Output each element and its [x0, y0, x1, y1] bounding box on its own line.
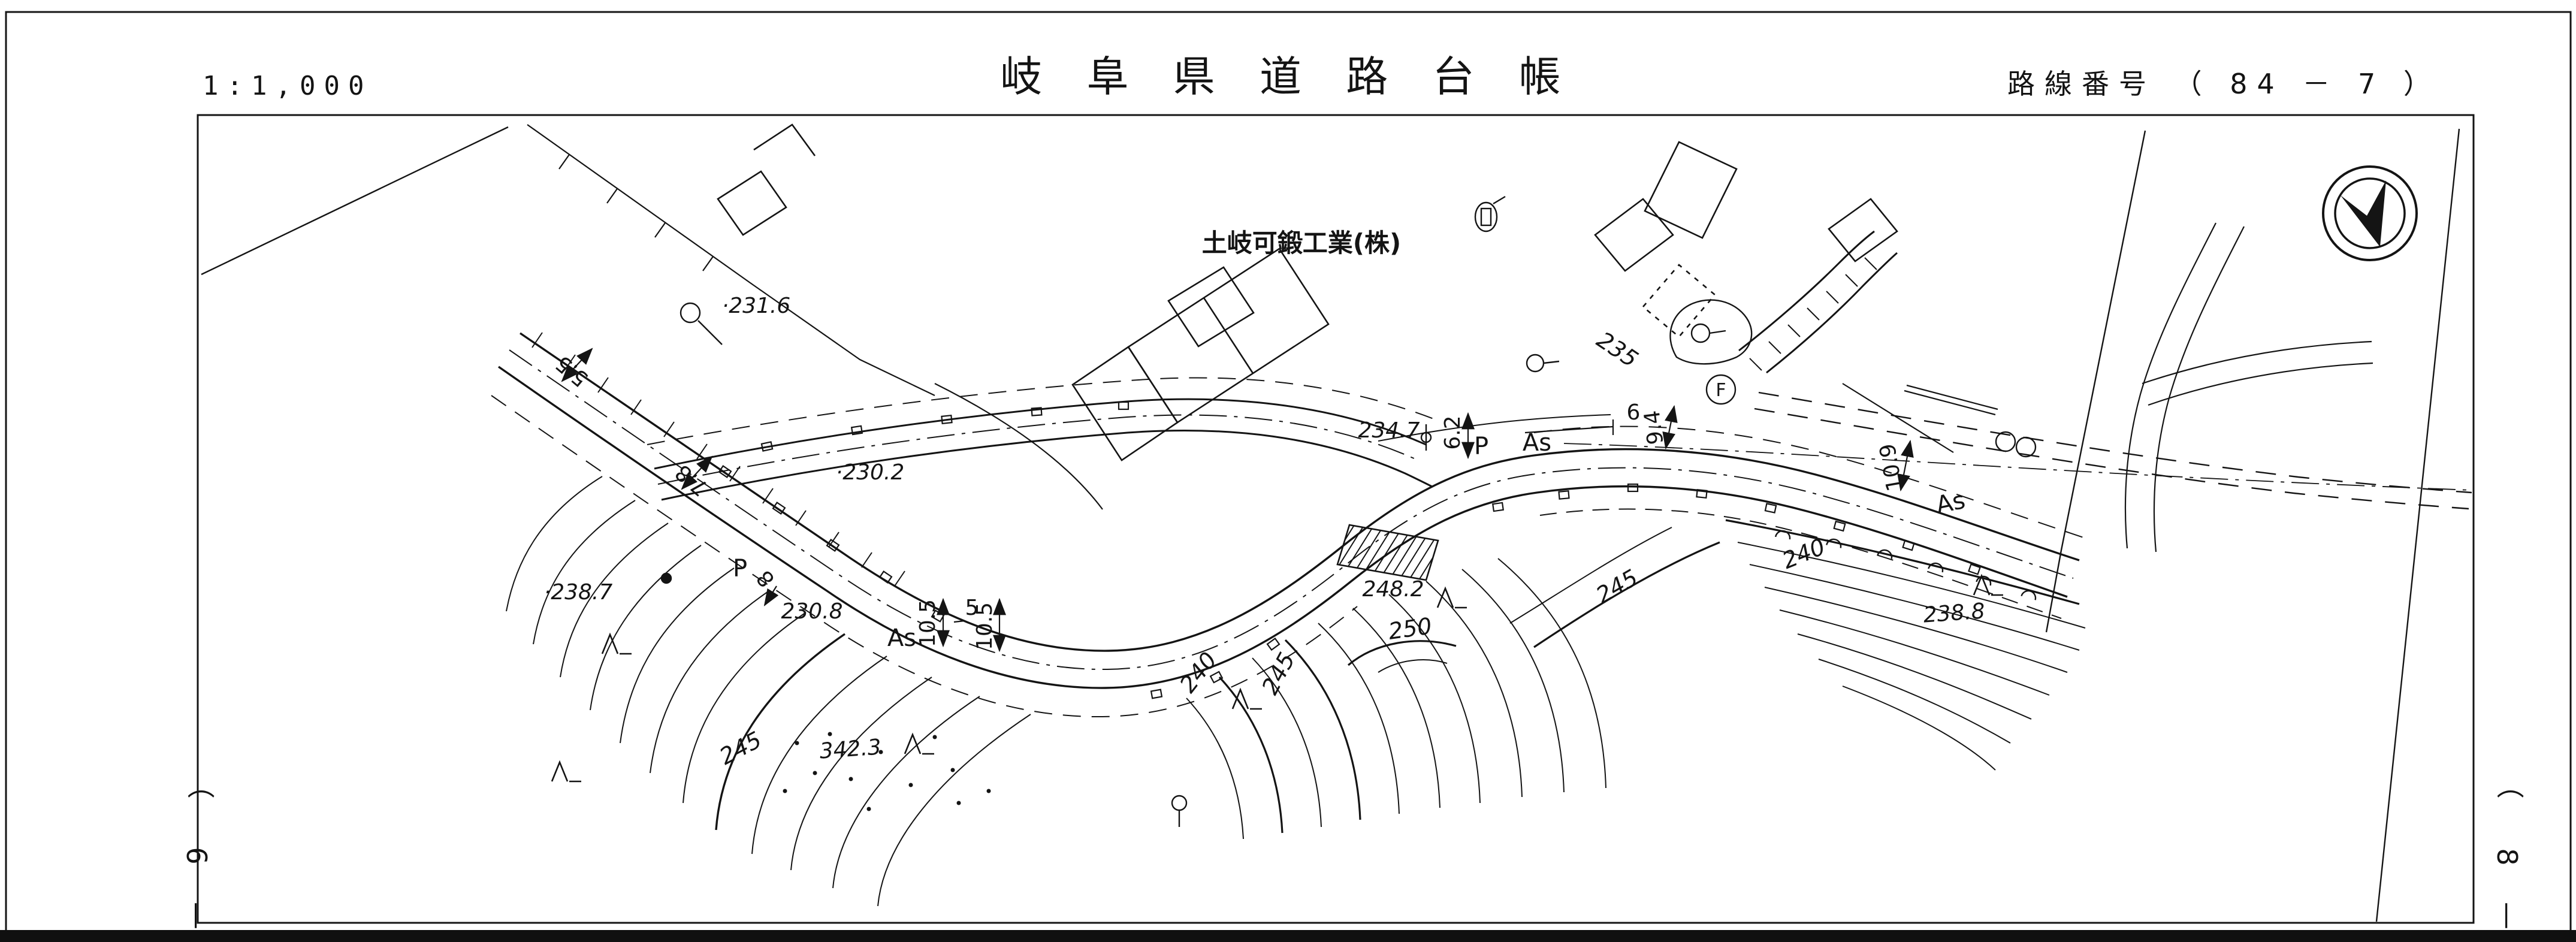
route-number-label: 路線番号 （ 84 － 7 ）: [2007, 68, 2441, 100]
bank-hatch-ticks-ne: [1750, 258, 1877, 370]
circle-tick-icon: [1527, 355, 1559, 372]
main-road-centerline: [509, 350, 2073, 669]
map-symbols: [662, 197, 2036, 827]
map-label-25: 9.4: [1640, 409, 1669, 446]
stream-lines: [2125, 223, 2373, 552]
map-label-17: P: [1474, 433, 1488, 460]
fence-lines-northwest: [527, 125, 1103, 509]
building: [1829, 199, 1897, 261]
page-title: 岐 阜 県 道 路 台 帳: [1000, 52, 1577, 101]
factory-building-annex: [1073, 347, 1177, 460]
map-label-14: 235: [1592, 327, 1643, 373]
building: [718, 171, 786, 235]
filled-point: [662, 573, 671, 583]
right-dash: —: [2492, 902, 2524, 929]
map-label-7: 342.3: [819, 735, 882, 763]
map-label-13: 240: [1778, 533, 1829, 574]
map-label-23: 6.2: [1440, 415, 1465, 449]
map-label-1: ·230.2: [836, 460, 905, 485]
map-label-6: 238.8: [1922, 599, 1986, 627]
building: [1595, 199, 1673, 271]
circle-stem-icon: [1172, 796, 1186, 827]
map-label-19: As: [1934, 487, 1968, 520]
monument-icon: [1475, 197, 1505, 231]
scale-label: 1:1,000: [203, 71, 372, 101]
building: [1168, 267, 1254, 346]
branch-road-northwest: [647, 378, 1435, 500]
map-labels-layer: ·231.6·230.2·238.7230.8234.7248.2238.834…: [544, 228, 1986, 770]
map-canvas: 1:1,000 岐 阜 県 道 路 台 帳 路線番号 （ 84 － 7 ） （ …: [0, 0, 2576, 942]
right-margin-marks: （ 8 —: [2491, 771, 2526, 929]
scrub-dots: [783, 732, 991, 811]
map-label-8: 250: [1387, 612, 1433, 645]
road-reserve-dashed-ne: [1534, 427, 2085, 538]
map-label-24: 6: [1627, 400, 1641, 425]
double-circle-icon: [1996, 432, 2036, 457]
contour-lines-east: [1726, 520, 2085, 770]
map-label-30: F: [1716, 380, 1726, 401]
left-paren: （: [184, 771, 216, 799]
building-partial: [754, 125, 815, 156]
map-label-9: 245: [1591, 564, 1642, 609]
map-label-16: As: [887, 624, 916, 652]
left-dash: —: [182, 902, 214, 929]
main-road-lower-edge: [499, 367, 2067, 688]
map-label-26: 10.9: [1876, 442, 1908, 493]
map-label-22: 10.5: [973, 602, 997, 650]
map-label-3: 230.8: [781, 599, 842, 624]
north-arrow-icon: [2323, 167, 2417, 260]
map-label-20: 10.5: [916, 599, 940, 647]
map-label-5: 248.2: [1362, 577, 1424, 602]
page-border: [0, 12, 2576, 942]
map-label-4: 234.7: [1358, 418, 1420, 443]
hatched-structure: [1337, 525, 1438, 580]
map-label-12: 245: [1257, 648, 1300, 699]
contour-lines-southwest: [506, 476, 1031, 906]
road-ledger-sheet: 1:1,000 岐 阜 県 道 路 台 帳 路線番号 （ 84 － 7 ） （ …: [0, 0, 2576, 942]
right-sheet-number: 8: [2491, 848, 2523, 865]
main-road-upper-edge: [520, 333, 2079, 651]
building: [1645, 142, 1737, 238]
map-label-18: As: [1523, 429, 1551, 457]
map-label-15: P: [733, 555, 747, 582]
map-label-0: ·231.6: [722, 294, 791, 318]
map-label-2: ·238.7: [544, 580, 613, 605]
road-reserve-dashed-sw: [491, 395, 1357, 717]
map-label-31: 土岐可鍛工業(株): [1202, 228, 1401, 258]
manhole-icon: [1692, 324, 1710, 342]
left-margin-marks: （ 6 —: [180, 771, 216, 929]
map-label-10: 245: [715, 726, 766, 770]
utility-pole-icon: [1421, 424, 1431, 451]
scan-edge-bar: [0, 930, 2576, 942]
right-paren: （: [2493, 771, 2526, 799]
left-sheet-number: 6: [180, 847, 213, 864]
map-label-27: 5.5: [551, 351, 593, 391]
map-label-11: 240: [1174, 647, 1222, 698]
retaining-wall-double-line: [1904, 385, 1998, 415]
circle-branch-icon: [681, 303, 722, 345]
